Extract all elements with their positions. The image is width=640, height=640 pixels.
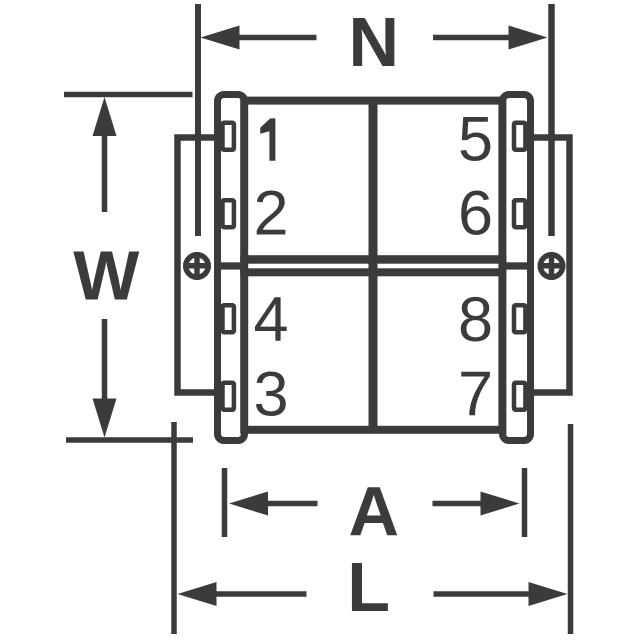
svg-text:2: 2 xyxy=(254,179,289,249)
svg-text:4: 4 xyxy=(254,285,289,355)
svg-text:7: 7 xyxy=(458,360,493,430)
svg-text:3: 3 xyxy=(254,360,289,430)
svg-text:L: L xyxy=(347,548,390,626)
svg-text:8: 8 xyxy=(458,285,493,355)
svg-text:N: N xyxy=(349,3,400,81)
svg-text:6: 6 xyxy=(458,179,493,249)
svg-text:A: A xyxy=(349,473,400,551)
svg-text:W: W xyxy=(73,237,139,315)
svg-text:5: 5 xyxy=(458,105,493,175)
